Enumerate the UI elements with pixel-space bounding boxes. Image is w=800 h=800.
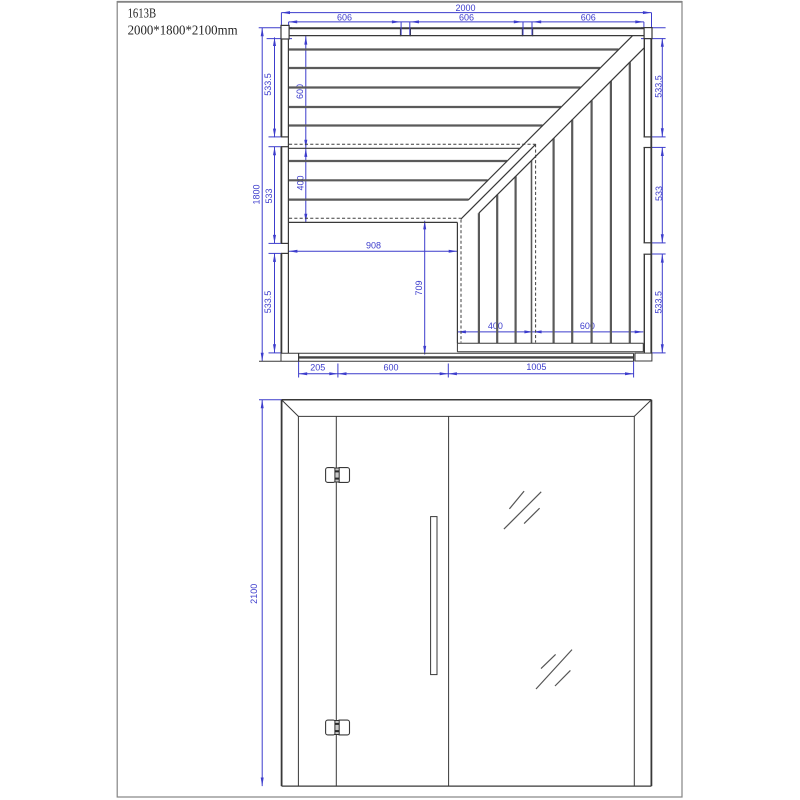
svg-text:400: 400 [488, 321, 503, 331]
svg-text:908: 908 [366, 241, 381, 251]
svg-text:606: 606 [581, 13, 596, 23]
svg-text:709: 709 [414, 280, 424, 295]
svg-text:533: 533 [654, 186, 664, 201]
svg-text:533.5: 533.5 [263, 291, 273, 314]
svg-text:533.5: 533.5 [654, 291, 664, 314]
svg-text:606: 606 [459, 13, 474, 23]
svg-text:600: 600 [295, 84, 305, 99]
svg-text:606: 606 [337, 13, 352, 23]
svg-text:2000*1800*2100mm: 2000*1800*2100mm [128, 23, 238, 38]
svg-text:205: 205 [310, 363, 325, 373]
svg-text:533: 533 [264, 188, 274, 203]
svg-text:600: 600 [383, 363, 398, 373]
svg-text:1613B: 1613B [128, 6, 157, 21]
svg-text:533.5: 533.5 [654, 75, 664, 98]
svg-text:533.5: 533.5 [263, 73, 273, 96]
svg-text:1800: 1800 [251, 184, 261, 204]
svg-text:2100: 2100 [249, 584, 259, 604]
svg-text:1005: 1005 [526, 362, 546, 372]
svg-text:400: 400 [296, 175, 306, 190]
